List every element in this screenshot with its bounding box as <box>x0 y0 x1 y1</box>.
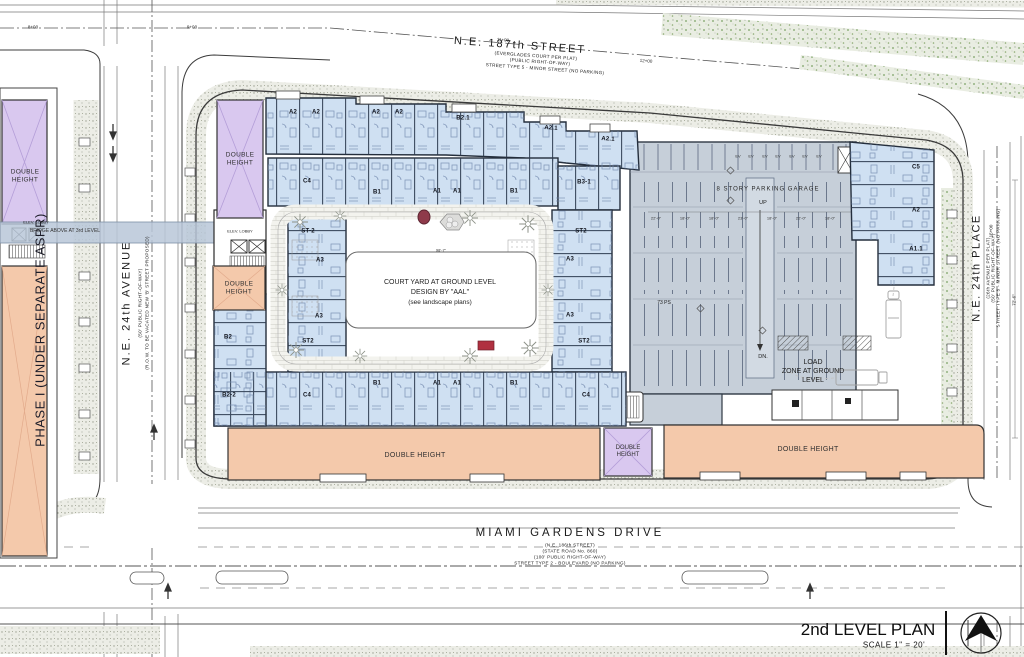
dimension-label: 18'-0" <box>767 217 777 222</box>
ev-stall-label: EV <box>816 155 821 160</box>
sheet-title: 2nd LEVEL PLAN <box>801 620 936 640</box>
unit-label: A1 <box>453 188 461 195</box>
elev-lobby-label: ELEV. LOBBY <box>23 221 48 226</box>
phase1-label: PHASE I (UNDER SEPARATE ASPR) <box>32 213 47 447</box>
unit-label: A3 <box>316 257 324 264</box>
double-height-strips <box>228 425 984 482</box>
station-marker: 15+00 <box>988 225 993 238</box>
ev-stall-label: EV <box>762 155 767 160</box>
street-sub: STREET TYPE 2 - BOULEVARD (NO PARKING) <box>514 560 625 565</box>
unit-label: A2 <box>372 109 380 116</box>
unit-label: B1 <box>510 188 518 195</box>
unit-label: A3 <box>315 313 323 320</box>
courtyard-note: COURT YARD AT GROUND LEVEL <box>384 279 496 287</box>
unit-label: ST-2 <box>301 228 314 235</box>
unit-label: A1.1 <box>909 246 922 253</box>
street-sub: (50' PUBLIC RIGHT-OF-WAY) <box>137 268 142 337</box>
unit-label: C5 <box>912 164 920 171</box>
street-sub: (100' PUBLIC RIGHT-OF-WAY) <box>534 554 606 559</box>
parking-garage <box>617 142 871 425</box>
phase1-building <box>0 88 57 558</box>
double-height-label: DOUBLE HEIGHT <box>384 452 445 460</box>
ramp-down-label: DN. <box>758 354 767 360</box>
dimension-label: 98'-7" <box>436 249 446 254</box>
plan-linework <box>0 0 1024 657</box>
street-sub: (R.O.W. TO BE VACATED NEW 'B' STREET PRO… <box>144 236 149 370</box>
station-marker: 8+00 <box>28 24 38 29</box>
unit-label: A2.1 <box>601 136 615 144</box>
dimension-line <box>1012 180 1018 438</box>
unit-label: ST2 <box>575 228 587 235</box>
sculpture-marker <box>418 210 430 224</box>
station-marker: 9+00 <box>187 24 197 29</box>
double-height-label: DOUBLE HEIGHT <box>777 446 838 454</box>
street-name-left: N.E. 24th AVENUE <box>121 241 134 366</box>
unit-label: A2 <box>289 109 297 116</box>
street-name-bottom: MIAMI GARDENS DRIVE <box>476 527 665 541</box>
unit-label: B1 <box>510 380 518 387</box>
ev-stall-label: EV <box>802 155 807 160</box>
unit-label: B2-2 <box>222 392 236 399</box>
street-sub: STREET TYPE 5 - MINOR STREET (NO PARKING… <box>995 209 1000 328</box>
unit-label: A1 <box>453 380 461 387</box>
unit-label: ST2 <box>302 338 314 345</box>
double-height-label: DOUBLE HEIGHT <box>608 445 648 459</box>
station-marker: 11+00 <box>497 37 510 43</box>
ev-stall-label: EV <box>735 155 740 160</box>
load-zone-note: LOAD <box>803 359 822 367</box>
parking-count-label: 73 PS <box>657 301 671 307</box>
dimension-label: 22'-0" <box>651 217 661 222</box>
dimension-label: 72'-6" <box>1011 294 1016 305</box>
garage-title: 8 STORY PARKING GARAGE <box>717 186 820 193</box>
unit-label: C4 <box>303 178 311 185</box>
unit-label: A2 <box>395 109 403 116</box>
dimension-label: 23'-0" <box>738 217 748 222</box>
unit-label: A2 <box>312 109 320 116</box>
double-height-label: DOUBLE HEIGHT <box>3 168 47 183</box>
bridge-label: BRIDGE ABOVE AT 3rd LEVEL <box>30 229 100 235</box>
street-sub: (STATE ROAD No. 860) <box>542 548 597 553</box>
dimension-label: 18'-0" <box>709 217 719 222</box>
unit-label: B2 <box>224 334 232 341</box>
unit-label: A1 <box>433 188 441 195</box>
unit-label: A3 <box>566 256 574 263</box>
dimension-label: 22'-0" <box>796 217 806 222</box>
double-height-label: DOUBLE HEIGHT <box>218 151 262 166</box>
unit-label: C4 <box>582 392 590 399</box>
unit-label: A2.1 <box>544 125 558 133</box>
ev-stall-label: EV <box>775 155 780 160</box>
station-marker: 12+00 <box>640 58 653 64</box>
elev-lobby-label: ELEV. LOBBY <box>227 230 252 235</box>
site-plan-sheet: N.E. 187th STREET (EVERGLADES COURT PER … <box>0 0 1024 657</box>
load-zone-note: ZONE AT GROUND <box>782 368 844 376</box>
double-height-label: DOUBLE HEIGHT <box>216 280 262 295</box>
unit-label: B2.1 <box>456 115 469 122</box>
ev-stall-label: EV <box>789 155 794 160</box>
unit-label: ST2 <box>578 338 590 345</box>
courtyard-note: DESIGN BY "AAL" <box>411 289 469 297</box>
load-zone-note: LEVEL <box>802 377 824 385</box>
unit-label: A3 <box>566 312 574 319</box>
unit-label: A2 <box>912 207 920 214</box>
street-sub: (N.E. 186th STREET) <box>545 542 595 547</box>
dimension-label: 18'-0" <box>680 217 690 222</box>
unit-label: B3-1 <box>577 179 591 186</box>
dimension-label: 18'-0" <box>825 217 835 222</box>
ramp-up-label: UP <box>759 200 767 206</box>
unit-label: B1 <box>373 380 381 387</box>
unit-label: A1 <box>433 380 441 387</box>
unit-label: C4 <box>303 392 311 399</box>
street-name-right: N.E. 24th PLACE <box>971 214 984 322</box>
sheet-scale: SCALE 1" = 20' <box>863 640 925 649</box>
unit-label: B1 <box>373 189 381 196</box>
ev-stall-label: EV <box>748 155 753 160</box>
courtyard-note: (see landscape plans) <box>408 299 472 307</box>
